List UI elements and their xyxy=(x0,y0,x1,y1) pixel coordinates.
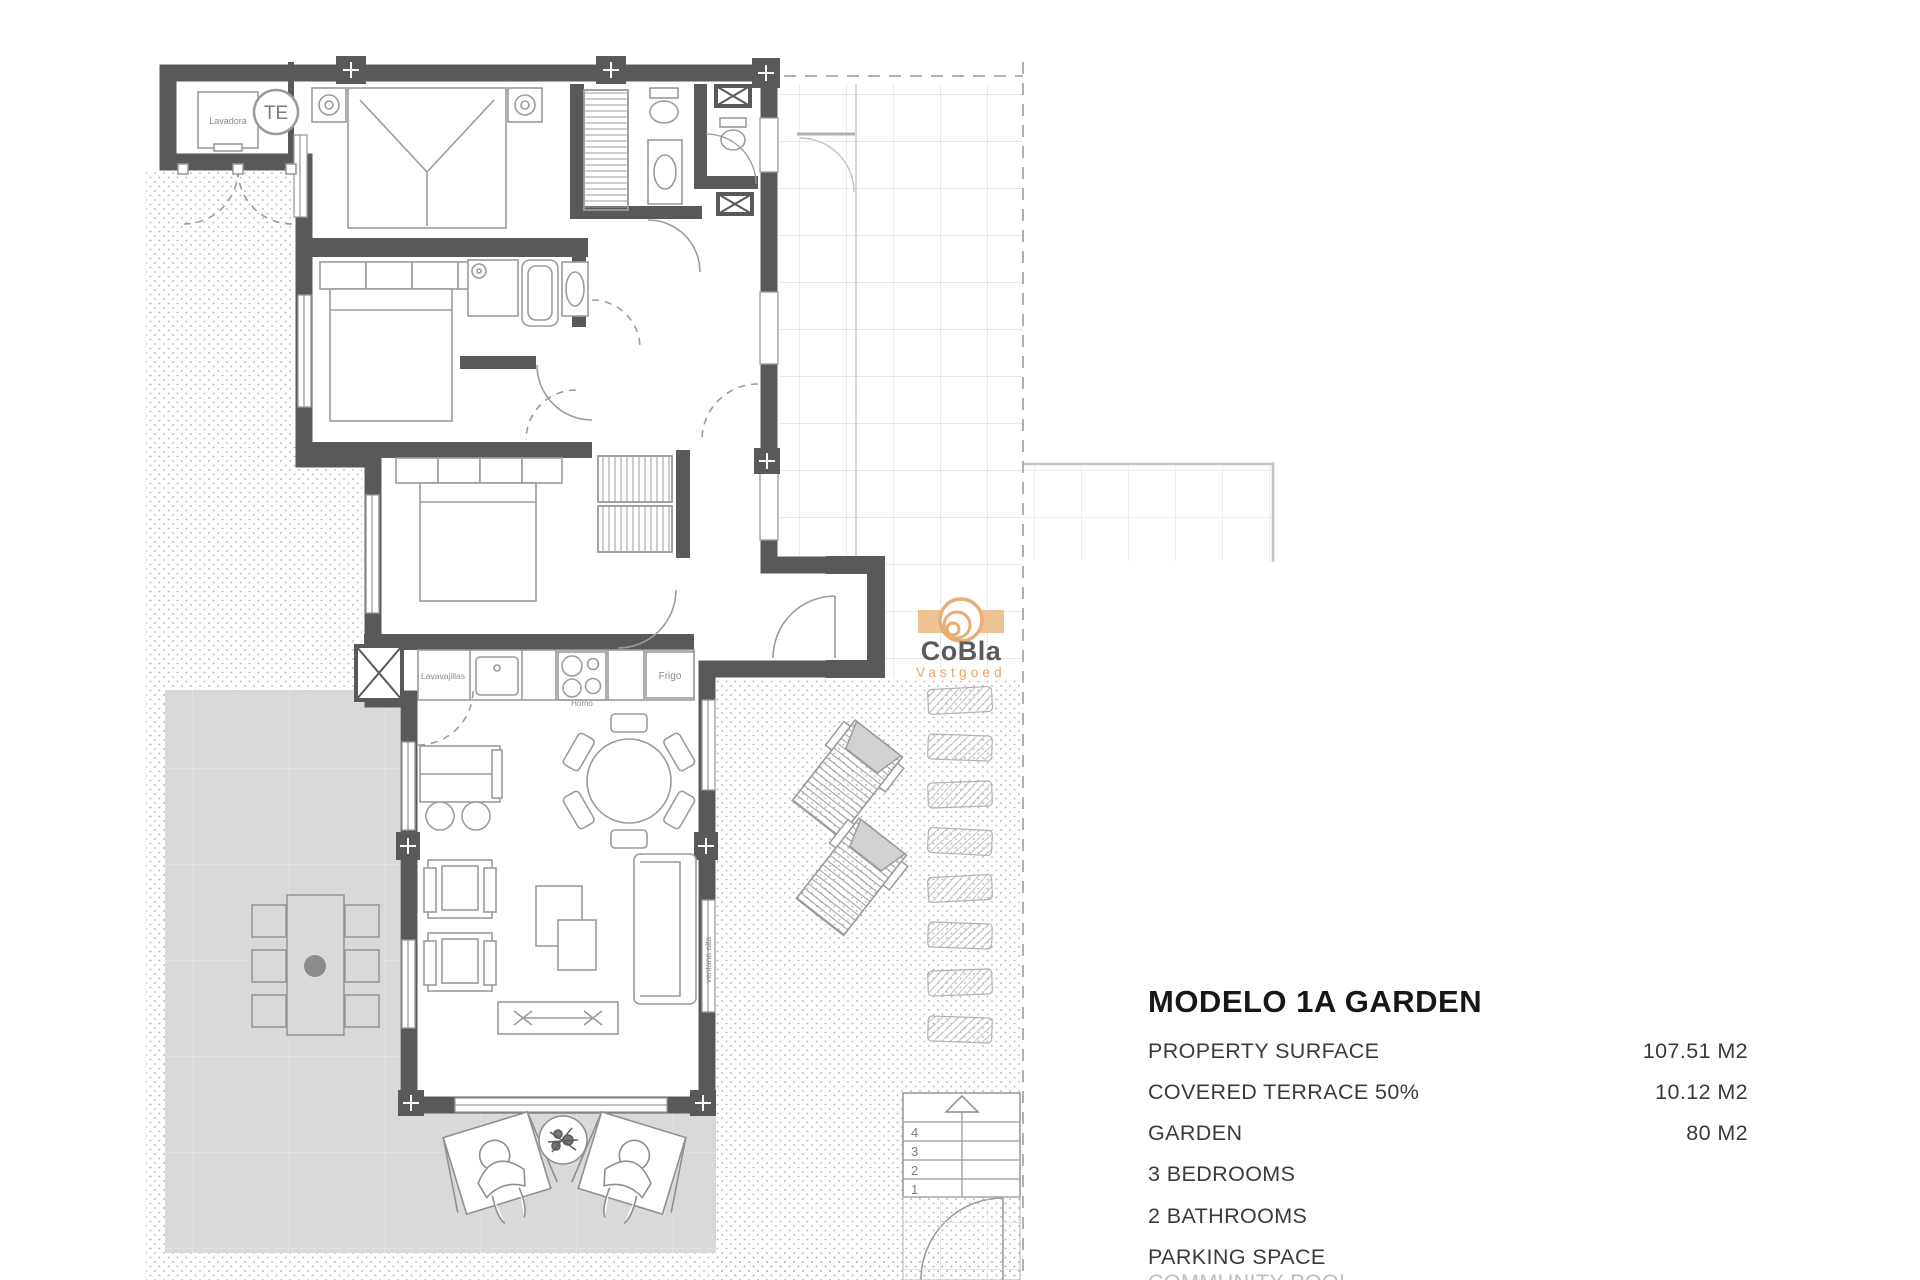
plan-title: MODELO 1A GARDEN xyxy=(1148,984,1748,1020)
cobla-logo: CoBla Vastgoed xyxy=(916,599,1006,680)
tv-bench xyxy=(498,1002,618,1034)
armchair-2 xyxy=(424,933,496,991)
external-stairs: 4 3 2 1 xyxy=(903,1093,1020,1280)
row-label: PROPERTY SURFACE xyxy=(1148,1041,1379,1063)
logo-name: CoBla xyxy=(921,636,1002,666)
row-label: GARDEN xyxy=(1148,1123,1242,1145)
kitchen-hob xyxy=(558,652,606,700)
water-heater-label: TE xyxy=(264,103,288,124)
row-value: 107.51 M2 xyxy=(1643,1041,1748,1063)
info-row-terrace: COVERED TERRACE 50% 10.12 M2 xyxy=(1148,1082,1748,1104)
info-row-surface: PROPERTY SURFACE 107.51 M2 xyxy=(1148,1041,1748,1063)
sofa xyxy=(634,854,696,1004)
high-window-label: ventana alta xyxy=(703,937,713,984)
oven-label: Horno xyxy=(571,699,593,708)
kitchen-sink xyxy=(476,657,518,695)
garden-dining-set xyxy=(252,895,379,1035)
guest-wc-fixtures xyxy=(720,118,746,150)
row-value: 10.12 M2 xyxy=(1655,1082,1748,1104)
info-row-garden: GARDEN 80 M2 xyxy=(1148,1123,1748,1145)
row-label: 3 BEDROOMS xyxy=(1148,1164,1295,1186)
info-row-community-clipped: COMMUNITY POOL xyxy=(1148,1272,1748,1280)
parasol-dot xyxy=(304,955,326,977)
row-label: COVERED TERRACE 50% xyxy=(1148,1082,1419,1104)
info-row-parking: PARKING SPACE xyxy=(1148,1247,1748,1269)
info-row-bathrooms: 2 BATHROOMS xyxy=(1148,1206,1748,1228)
bedroom1-wardrobe xyxy=(584,90,628,210)
row-value: 80 M2 xyxy=(1686,1123,1748,1145)
row-label: PARKING SPACE xyxy=(1148,1247,1326,1269)
stair-number-1: 1 xyxy=(911,1182,918,1197)
bathroom2-fixtures xyxy=(468,260,588,326)
stair-number-4: 4 xyxy=(911,1125,918,1140)
washer-label: Lavadora xyxy=(209,116,247,126)
dishwasher-label: Lavavajillas xyxy=(421,671,465,681)
floorplan-page: 4 3 2 1 Lavadora TE Lavavajillas Horno F… xyxy=(0,0,1920,1280)
stair-number-3: 3 xyxy=(911,1144,918,1159)
logo-subtitle: Vastgoed xyxy=(916,665,1006,680)
row-label: COMMUNITY POOL xyxy=(1148,1272,1352,1280)
info-row-bedrooms: 3 BEDROOMS xyxy=(1148,1164,1748,1186)
armchair-1 xyxy=(424,860,496,918)
row-label: 2 BATHROOMS xyxy=(1148,1206,1307,1228)
fridge-label: Frigo xyxy=(659,671,682,682)
stair-number-2: 2 xyxy=(911,1163,918,1178)
